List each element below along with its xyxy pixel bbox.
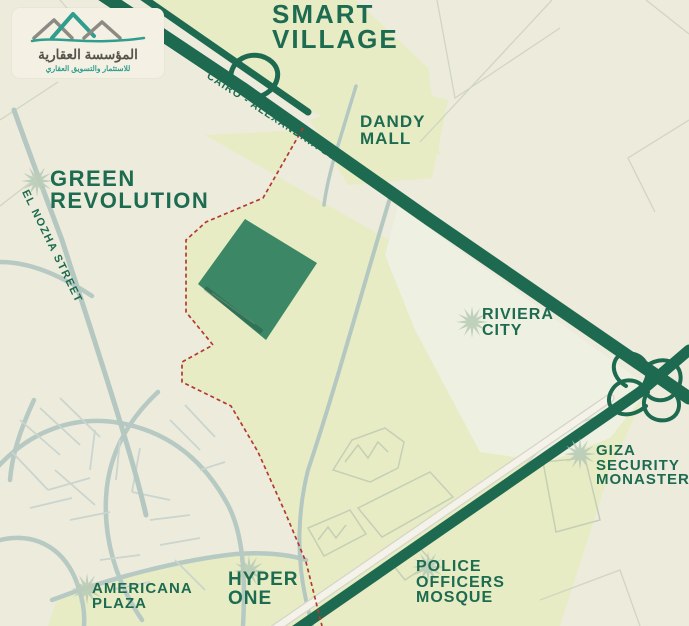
logo-company-name: المؤسسة العقارية	[12, 47, 164, 63]
label-green-revolution: GREEN REVOLUTION	[50, 168, 209, 211]
label-smart-village: SMART VILLAGE	[272, 2, 399, 53]
label-riviera-city: RIVIERA CITY	[482, 307, 554, 338]
label-giza-security-monastery: GIZA SECURITY MONASTERY	[596, 444, 689, 488]
label-americana-plaza: AMERICANA PLAZA	[92, 582, 193, 611]
giza-security-monastery-marker-icon	[563, 437, 597, 471]
label-dandy-mall: DANDY MALL	[360, 114, 425, 147]
label-police-officers-mosque: POLICE OFFICERS MOSQUE	[416, 559, 505, 606]
label-hyper-one: HYPER ONE	[228, 571, 298, 608]
logo-mountains-icon	[25, 10, 151, 46]
location-map[interactable]: SMART VILLAGE DANDY MALL GREEN REVOLUTIO…	[0, 0, 689, 626]
logo-company-tagline: للاستثمار والتسويق العقاري	[12, 64, 164, 73]
company-logo: المؤسسة العقارية للاستثمار والتسويق العق…	[12, 8, 164, 78]
map-graphics	[0, 0, 689, 626]
